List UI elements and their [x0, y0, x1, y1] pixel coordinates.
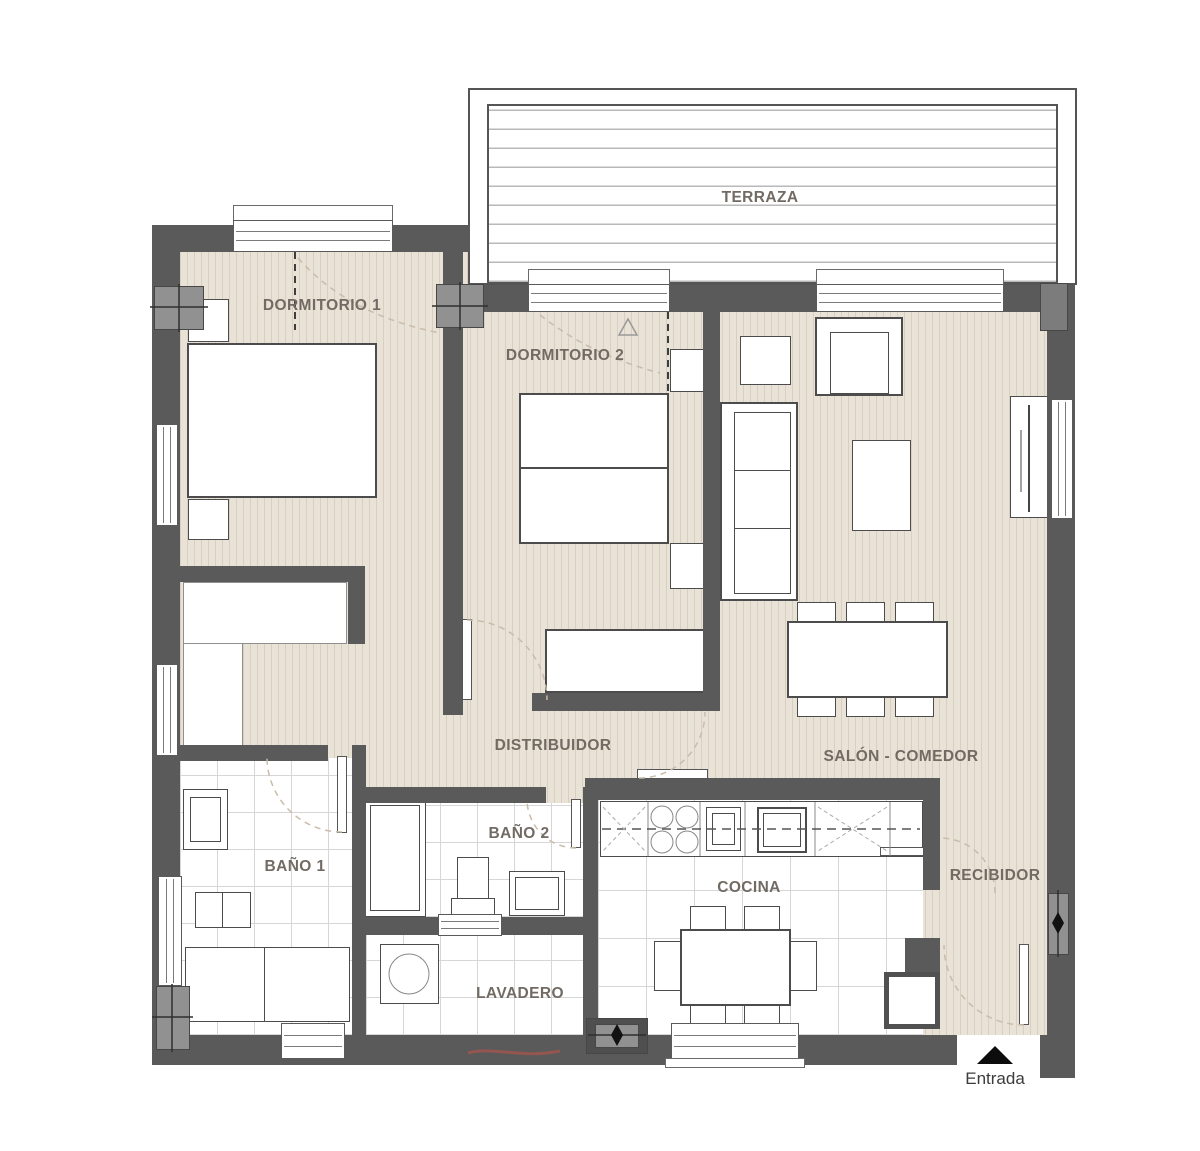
kitchen-sink-inner [763, 813, 801, 847]
kitchen-window-sill [665, 1058, 805, 1068]
bath1-sink-a [195, 892, 223, 928]
dining-chair-3 [895, 602, 934, 622]
floor-plan: TERRAZA DORMITORIO 1 DORMITORIO 2 DISTRI… [0, 0, 1200, 1151]
wall-wardrobe-north [180, 566, 365, 582]
kitchen-chair-5 [654, 941, 681, 991]
salon-side-window [1051, 399, 1073, 519]
salon-tv [830, 332, 889, 394]
dorm1-side-window [156, 424, 178, 526]
room-label-terraza: TERRAZA [722, 189, 799, 207]
column-topleft [154, 286, 204, 330]
room-label-bano1: BAÑO 1 [265, 858, 326, 876]
dorm2-bed-lower [519, 467, 669, 544]
kitchen-chair-1 [690, 906, 726, 930]
wall-kitchen-east-upper [923, 790, 940, 890]
wardrobe-dorm1 [183, 582, 347, 644]
room-label-distribuidor: DISTRIBUIDOR [495, 737, 612, 755]
bath1-shower-b [264, 947, 350, 1022]
bath1-side-window [158, 876, 182, 986]
bath2-door-leaf [571, 799, 581, 848]
kitchen-corner-shaft [884, 972, 940, 1029]
dining-chair-4 [797, 697, 836, 717]
wall-bath1-north [180, 745, 328, 761]
dining-chair-6 [895, 697, 934, 717]
column-dorm-divider [436, 284, 484, 328]
wall-bath2-laundry-b [500, 917, 585, 935]
wall-bath2-laundry-a [352, 917, 440, 935]
kitchen-oven-inner [712, 813, 735, 845]
kitchen-bottom-window [671, 1023, 799, 1059]
bath1-toilet-inner [190, 797, 221, 842]
salon-window-sill [816, 269, 1004, 285]
wall-bath1-east [352, 745, 366, 1035]
column-bottomleft [156, 986, 190, 1050]
wall-entrance-corner [1040, 1035, 1075, 1078]
dining-chair-1 [797, 602, 836, 622]
dorm1-bed [187, 343, 377, 498]
bath2-laundry-slider [438, 914, 502, 936]
sofa-cushion-3 [734, 528, 791, 594]
bath2-shower-inner [370, 805, 420, 911]
dorm2-window [528, 284, 670, 312]
bath2-sink-inner [515, 877, 559, 910]
entrance-label: Entrada [965, 1069, 1025, 1089]
hall-side-window [156, 664, 178, 756]
salon-coffee-table [852, 440, 911, 531]
column-kitchen-bottom-inner [595, 1024, 639, 1048]
bath1-bottom-window [281, 1023, 345, 1059]
salon-media-unit [1010, 396, 1049, 518]
dining-table [787, 621, 948, 698]
wall-kitchen-east-lower [905, 938, 940, 974]
dorm2-bed-upper [519, 393, 669, 469]
column-topright [1040, 283, 1068, 331]
dorm2-window-sill [528, 269, 670, 285]
wall-wardrobe-east [348, 566, 365, 644]
wall-salon-west [703, 312, 720, 711]
wardrobe-dorm1-leg [183, 643, 243, 750]
wall-kitchen-north [585, 778, 940, 800]
salon-passage-door-leaf [637, 769, 708, 779]
salon-armchair [740, 336, 791, 385]
wall-bottom [152, 1035, 957, 1065]
kitchen-door-leaf [880, 847, 924, 856]
washing-machine [380, 944, 439, 1004]
dorm2-nightstand-bottom [670, 543, 707, 589]
dorm2-door-leaf [462, 619, 472, 700]
bath1-door-leaf [337, 756, 347, 833]
room-label-cocina: COCINA [717, 879, 781, 897]
kitchen-chair-6 [790, 941, 817, 991]
entrance-arrow-icon [977, 1046, 1013, 1064]
entrance-door-leaf [1019, 944, 1029, 1025]
dining-chair-2 [846, 602, 885, 622]
kitchen-table [680, 929, 791, 1006]
bath1-shower-a [185, 947, 265, 1022]
dorm2-sideboard [545, 629, 709, 693]
salon-window [816, 284, 1004, 312]
wall-kitchen-west [583, 787, 598, 1035]
kitchen-chair-2 [744, 906, 780, 930]
dorm2-nightstand-top [670, 349, 707, 392]
dorm1-window [233, 220, 393, 252]
room-label-recibidor: RECIBIDOR [950, 867, 1041, 885]
dining-chair-5 [846, 697, 885, 717]
room-label-dormitorio2: DORMITORIO 2 [506, 347, 624, 365]
dorm1-window-sill [233, 205, 393, 221]
bath1-sink-b [222, 892, 251, 928]
column-right-mid [1048, 893, 1069, 955]
room-label-lavadero: LAVADERO [476, 985, 564, 1003]
room-label-bano2: BAÑO 2 [489, 825, 550, 843]
bath2-toilet-bowl [457, 857, 489, 899]
dorm1-nightstand-bottom [188, 499, 229, 540]
wall-dorm2-south [532, 693, 718, 711]
sofa-cushion-2 [734, 470, 791, 529]
wall-bath2-north [366, 787, 546, 803]
room-label-dormitorio1: DORMITORIO 1 [263, 297, 381, 315]
sofa-cushion-1 [734, 412, 791, 471]
room-label-salon-comedor: SALÓN - COMEDOR [824, 748, 979, 766]
